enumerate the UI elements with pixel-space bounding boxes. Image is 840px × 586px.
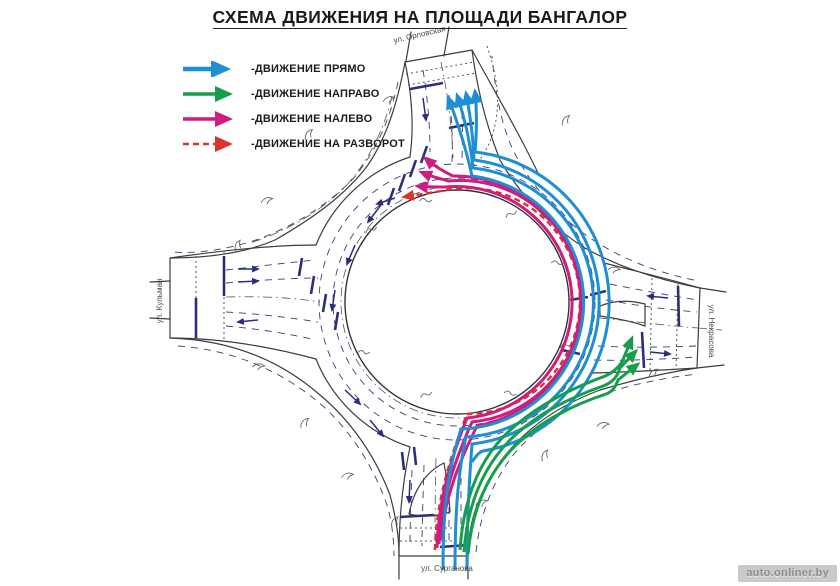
roundabout-diagram: ул. Орловская ул. Кульман ул. Некрасова … (0, 0, 840, 586)
street-label-east: ул. Некрасова (707, 305, 716, 358)
central-island (345, 190, 569, 414)
legend-item-left: -ДВИЖЕНИЕ НАЛЕВО (181, 111, 405, 127)
right-turn-arrow-icon (181, 86, 245, 102)
page-title: СХЕМА ДВИЖЕНИЯ НА ПЛОЩАДИ БАНГАЛОР (0, 7, 840, 28)
left-turn-arrow-icon (181, 111, 245, 127)
straight-arrow-icon (181, 61, 245, 77)
legend-item-uturn: -ДВИЖЕНИЕ НА РАЗВОРОТ (181, 136, 405, 152)
legend-item-straight: -ДВИЖЕНИЕ ПРЯМО (181, 61, 405, 77)
street-label-south: ул. Сурганова (421, 564, 473, 573)
u-turn-arrow-icon (181, 136, 245, 152)
legend-label: -ДВИЖЕНИЕ ПРЯМО (251, 63, 365, 75)
legend-item-right: -ДВИЖЕНИЕ НАПРАВО (181, 86, 405, 102)
legend-label: -ДВИЖЕНИЕ НА РАЗВОРОТ (251, 138, 405, 150)
page-root: { "title": "СХЕМА ДВИЖЕНИЯ НА ПЛОЩАДИ БА… (0, 0, 840, 586)
watermark: auto.onliner.by (738, 565, 837, 582)
legend-label: -ДВИЖЕНИЕ НАЛЕВО (251, 113, 372, 125)
street-label-west: ул. Кульман (155, 279, 164, 324)
legend-label: -ДВИЖЕНИЕ НАПРАВО (251, 88, 379, 100)
legend: -ДВИЖЕНИЕ ПРЯМО -ДВИЖЕНИЕ НАПРАВО -ДВИЖЕ… (181, 61, 405, 152)
